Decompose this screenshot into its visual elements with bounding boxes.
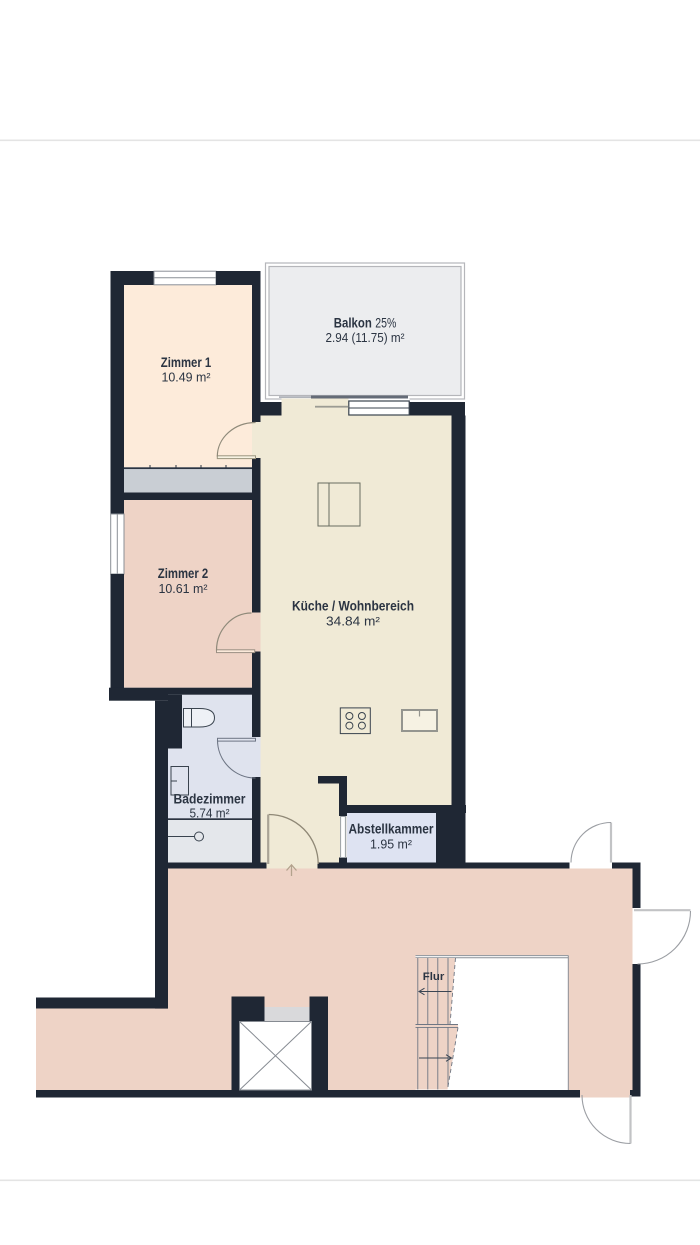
svg-text:25%: 25% bbox=[375, 315, 396, 331]
svg-text:10.61 m²: 10.61 m² bbox=[159, 581, 209, 596]
svg-text:Abstellkammer: Abstellkammer bbox=[349, 821, 434, 837]
svg-text:34.84 m²: 34.84 m² bbox=[326, 614, 381, 629]
svg-text:Balkon: Balkon bbox=[334, 315, 372, 331]
svg-text:Zimmer 1: Zimmer 1 bbox=[161, 354, 212, 370]
svg-text:2.94 (11.75) m²: 2.94 (11.75) m² bbox=[326, 330, 406, 345]
svg-text:5.74 m²: 5.74 m² bbox=[190, 806, 231, 821]
svg-text:Badezimmer: Badezimmer bbox=[174, 791, 246, 807]
svg-text:1.95 m²: 1.95 m² bbox=[370, 837, 413, 852]
svg-text:Zimmer 2: Zimmer 2 bbox=[158, 565, 209, 581]
svg-text:10.49 m²: 10.49 m² bbox=[162, 370, 212, 385]
svg-text:Küche / Wohnbereich: Küche / Wohnbereich bbox=[292, 598, 414, 614]
svg-text:Flur: Flur bbox=[423, 971, 445, 983]
